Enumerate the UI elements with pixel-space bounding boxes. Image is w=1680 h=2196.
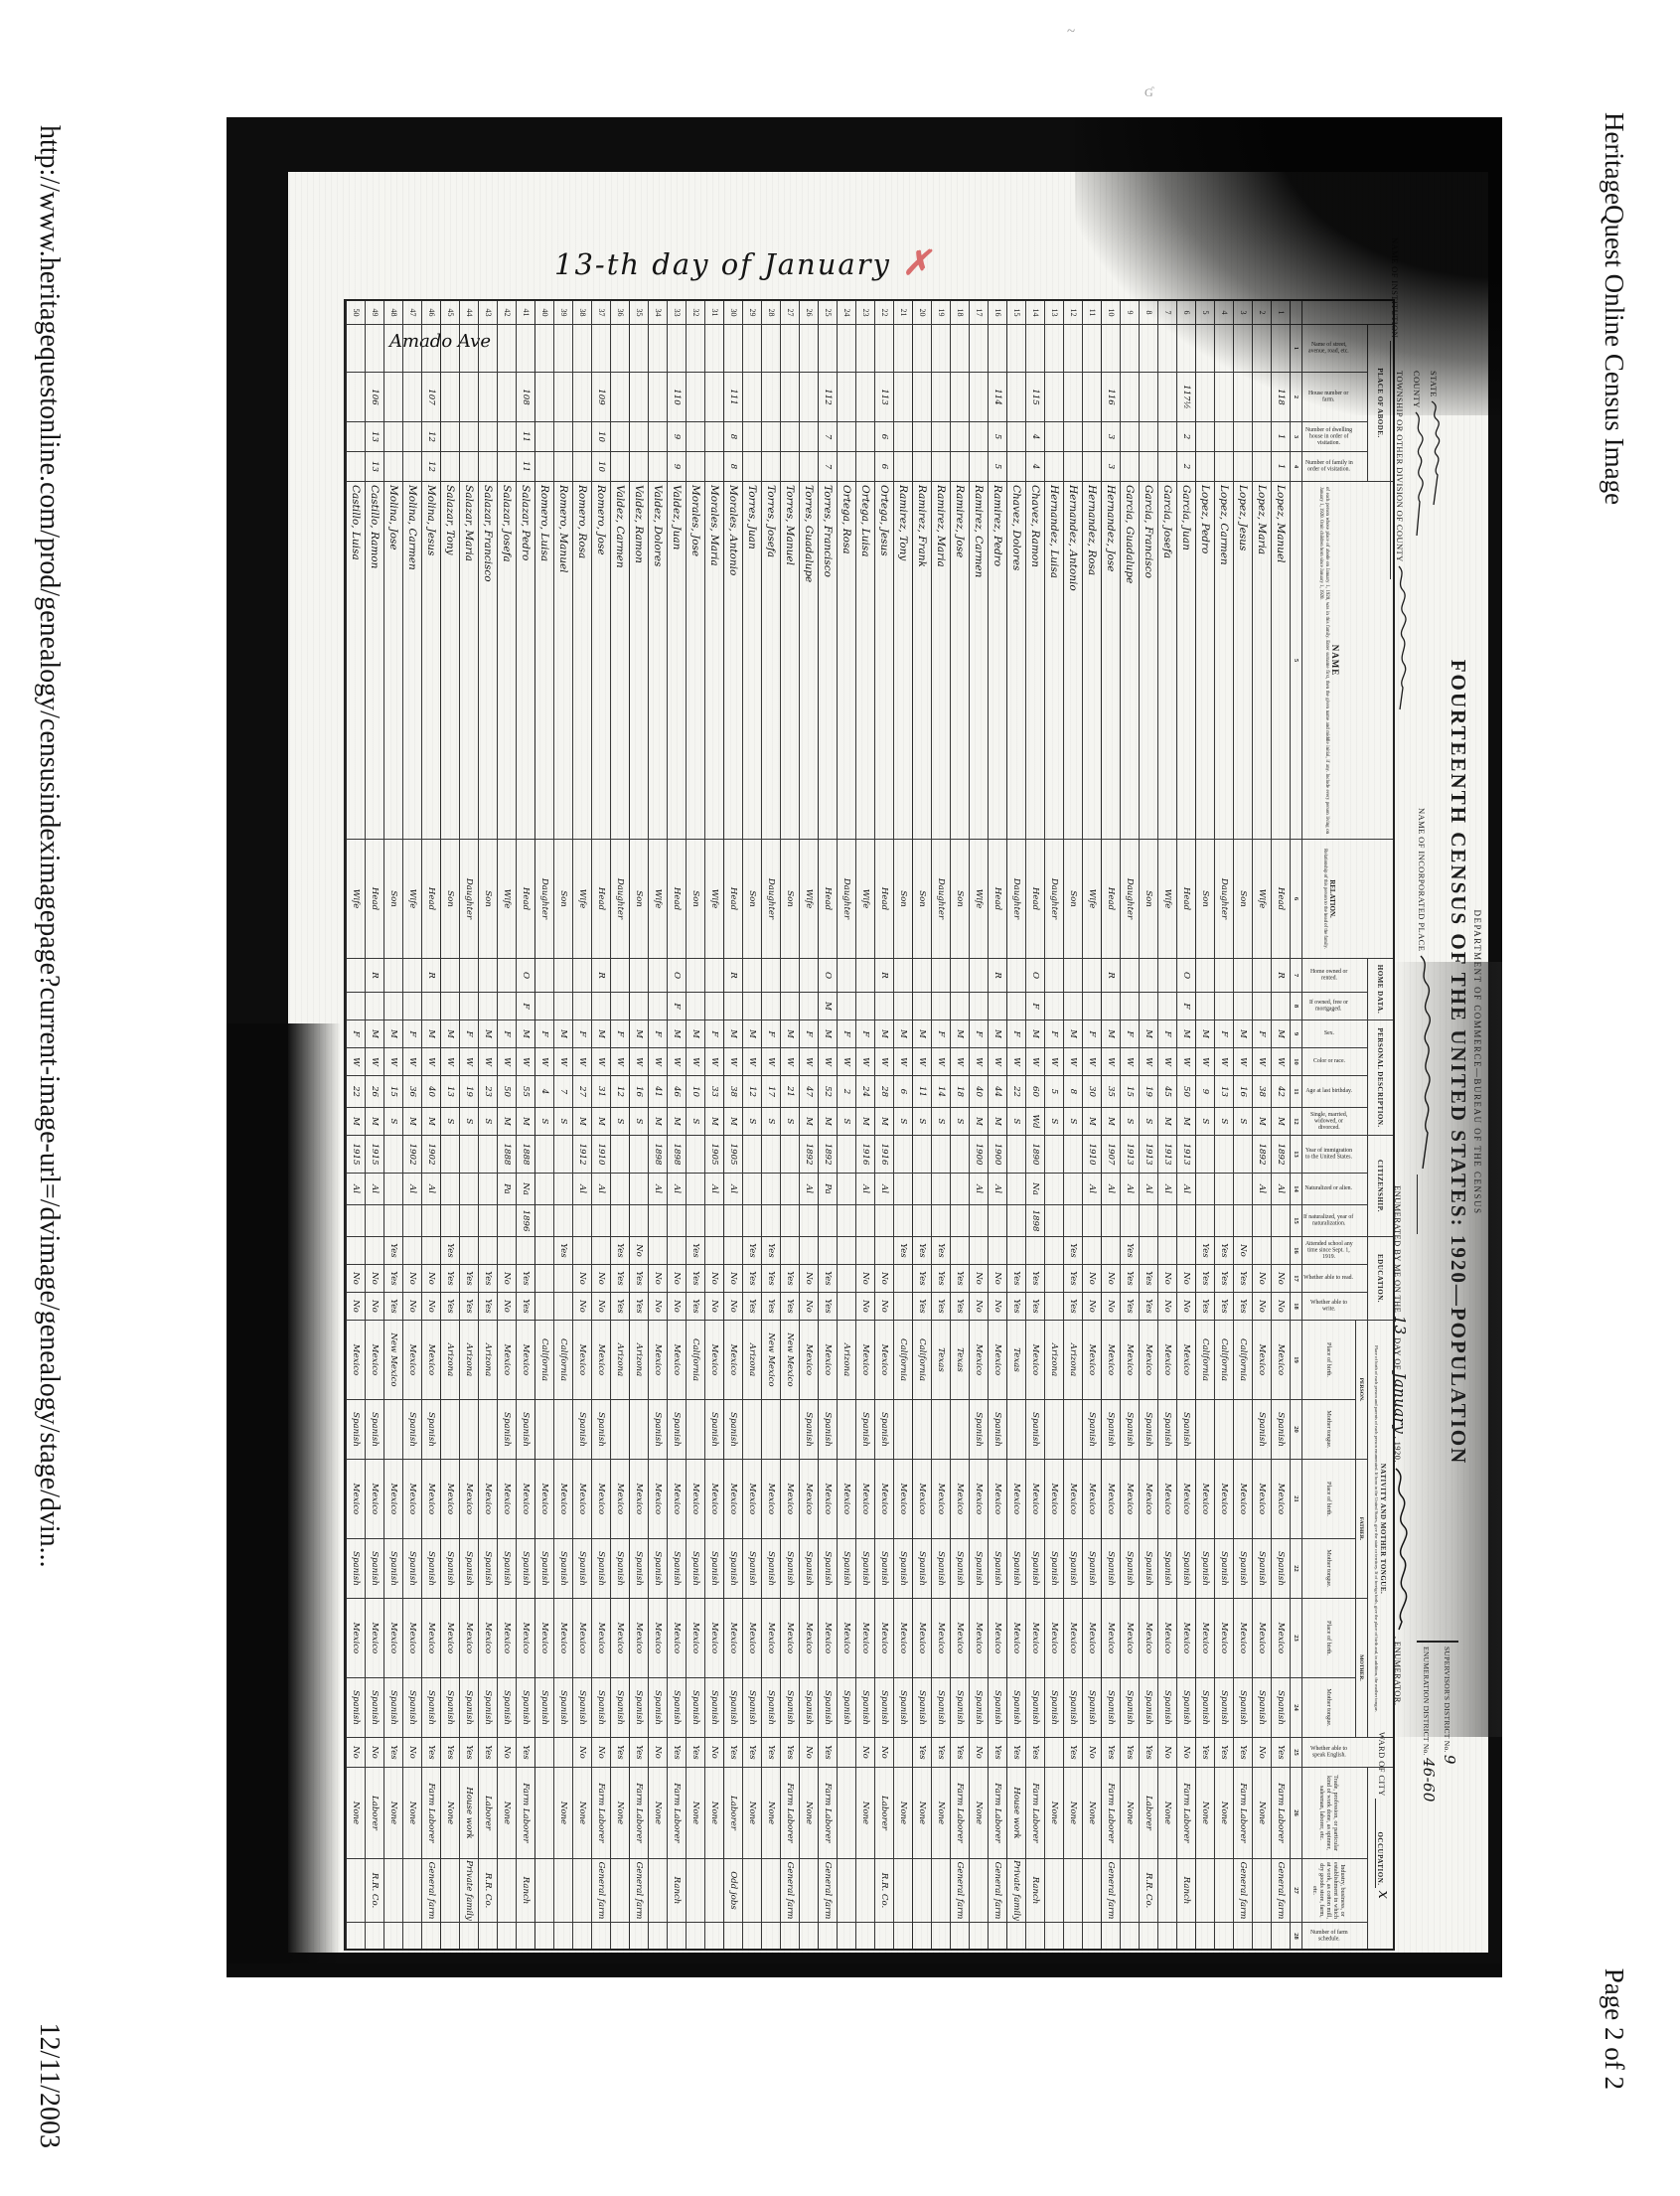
cell-sch: [704, 1237, 723, 1265]
cell-ind: General farm: [1271, 1859, 1290, 1923]
cell-fam: 5: [988, 452, 1006, 482]
cell-fbp: Mexico: [1101, 1460, 1120, 1539]
cell-mmt: Spanish: [1271, 1678, 1290, 1738]
column-header-ms: Single, married, widowed, or divorced.: [1301, 1108, 1355, 1136]
cell-fbp: Mexico: [365, 1460, 383, 1539]
cell-natyr: [1214, 1205, 1233, 1237]
cell-ms: S: [629, 1108, 648, 1136]
cell-rel: Wife: [346, 840, 365, 959]
cell-house: [459, 373, 478, 422]
cell-age: 23: [478, 1076, 497, 1108]
cell-farm: [1006, 1923, 1025, 1951]
cell-street: [837, 325, 855, 373]
cell-name: Ortega, Jesus: [874, 482, 893, 840]
cell-fmt: Spanish: [1271, 1539, 1290, 1599]
cell-ms: M: [667, 1108, 686, 1136]
cell-fmt: Spanish: [686, 1539, 704, 1599]
cell-own: [1195, 959, 1214, 993]
cell-occ: None: [686, 1768, 704, 1859]
cell-street: [988, 325, 1006, 373]
cell-own: [742, 959, 761, 993]
cell-age: 33: [704, 1076, 723, 1108]
cell-mmt: Spanish: [1252, 1678, 1271, 1738]
cell-write: No: [969, 1293, 988, 1321]
column-number: 23: [1290, 1599, 1301, 1678]
cell-race: W: [1139, 1048, 1157, 1076]
cell-name: Salazar, Josefa: [497, 482, 516, 840]
cell-sex: F: [1214, 1020, 1233, 1048]
cell-age: 36: [402, 1076, 421, 1108]
cell-age: 13: [440, 1076, 459, 1108]
cell-fam: [1252, 452, 1271, 482]
cell-race: W: [1195, 1048, 1214, 1076]
cell-fmt: Spanish: [931, 1539, 950, 1599]
cell-bp: Mexico: [1120, 1321, 1139, 1400]
cell-nat: Al: [648, 1174, 667, 1205]
cell-sex: F: [761, 1020, 780, 1048]
cell-ms: S: [459, 1108, 478, 1136]
column-header-age: Age at last birthday.: [1301, 1076, 1355, 1108]
cell-occ: None: [1195, 1768, 1214, 1859]
cell-ms: M: [648, 1108, 667, 1136]
cell-age: 9: [1195, 1076, 1214, 1108]
cell-farm: [1025, 1923, 1044, 1951]
cell-mt: [1063, 1400, 1082, 1460]
cell-bp: Mexico: [855, 1321, 874, 1400]
cell-fmt: Spanish: [572, 1539, 591, 1599]
group-header-empty: [1355, 840, 1367, 959]
cell-mort: F: [516, 993, 535, 1020]
cell-sex: F: [648, 1020, 667, 1048]
cell-read: No: [704, 1265, 723, 1293]
cell-farm: [742, 1923, 761, 1951]
cell-fam: [1120, 452, 1139, 482]
cell-mbp: Mexico: [1120, 1599, 1139, 1678]
cell-dw: [969, 422, 988, 452]
cell-nat: [478, 1174, 497, 1205]
cell-name: Hernandez, Antonio: [1063, 482, 1082, 840]
red-x-mark: ✗: [902, 243, 933, 283]
census-row: 12Hernandez, AntonioSonMW8SYesYesYesAriz…: [1063, 301, 1082, 1949]
cell-imm: [950, 1136, 969, 1174]
cell-street: [855, 325, 874, 373]
cell-sch: [1006, 1237, 1025, 1265]
cell-race: W: [931, 1048, 950, 1076]
cell-sex: F: [572, 1020, 591, 1048]
cell-rel: Head: [421, 840, 440, 959]
cell-fmt: Spanish: [742, 1539, 761, 1599]
cell-mbp: Mexico: [553, 1599, 572, 1678]
cell-mort: [988, 993, 1006, 1020]
cell-mort: [837, 993, 855, 1020]
cell-dw: [1082, 422, 1101, 452]
cell-age: 24: [855, 1076, 874, 1108]
cell-eng: Yes: [1195, 1738, 1214, 1768]
cell-natyr: [893, 1205, 912, 1237]
cell-mt: Spanish: [1252, 1400, 1271, 1460]
cell-occ: Farm Laborer: [421, 1768, 440, 1859]
cell-ind: [572, 1859, 591, 1923]
cell-write: Yes: [742, 1293, 761, 1321]
cell-house: 107: [421, 373, 440, 422]
cell-imm: 1900: [988, 1136, 1006, 1174]
cell-farm: [818, 1923, 837, 1951]
cell-natyr: [402, 1205, 421, 1237]
cell-mbp: Mexico: [365, 1599, 383, 1678]
cell-ln: 24: [837, 301, 855, 325]
cell-nat: [761, 1174, 780, 1205]
cell-race: W: [610, 1048, 629, 1076]
cell-mort: [723, 993, 742, 1020]
cell-mt: Spanish: [988, 1400, 1006, 1460]
cell-race: W: [874, 1048, 893, 1076]
cell-mbp: Mexico: [610, 1599, 629, 1678]
cell-ms: M: [591, 1108, 610, 1136]
cell-age: 35: [1101, 1076, 1120, 1108]
cell-nat: [535, 1174, 553, 1205]
cell-mort: [1195, 993, 1214, 1020]
cell-nat: Al: [1139, 1174, 1157, 1205]
cell-write: No: [365, 1293, 383, 1321]
cell-mt: Spanish: [365, 1400, 383, 1460]
cell-house: 111: [723, 373, 742, 422]
cell-mt: Spanish: [497, 1400, 516, 1460]
census-row: 47Molina, CarmenWifeFW36M1902AlNoNoMexic…: [402, 301, 421, 1949]
cell-fam: [402, 452, 421, 482]
cell-mmt: Spanish: [818, 1678, 837, 1738]
cell-house: 110: [667, 373, 686, 422]
cell-street: [591, 325, 610, 373]
cell-mbp: Mexico: [572, 1599, 591, 1678]
cell-fam: [497, 452, 516, 482]
group-header-empty: [1355, 1265, 1367, 1293]
column-header-natyr: If naturalized, year of naturalization.: [1301, 1205, 1355, 1237]
cell-imm: 1902: [402, 1136, 421, 1174]
cell-natyr: [535, 1205, 553, 1237]
cell-bp: Arizona: [1063, 1321, 1082, 1400]
cell-write: Yes: [629, 1293, 648, 1321]
column-header-eng: Whether able to speak English.: [1301, 1738, 1355, 1768]
cell-ms: S: [893, 1108, 912, 1136]
cell-rel: Son: [440, 840, 459, 959]
cell-imm: [837, 1136, 855, 1174]
cell-mt: Spanish: [1176, 1400, 1195, 1460]
cell-rel: Head: [988, 840, 1006, 959]
cell-rel: Wife: [497, 840, 516, 959]
cell-nat: Al: [874, 1174, 893, 1205]
column-number: 9: [1290, 1020, 1301, 1048]
cell-fbp: Mexico: [1044, 1460, 1063, 1539]
cell-farm: [1271, 1923, 1290, 1951]
cell-mbp: Mexico: [478, 1599, 497, 1678]
census-row: 8Garcia, FranciscoSonMW19S1913AlYesYesMe…: [1139, 301, 1157, 1949]
cell-fbp: Mexico: [874, 1460, 893, 1539]
cell-natyr: 1896: [516, 1205, 535, 1237]
cell-name: Salazar, Francisco: [478, 482, 497, 840]
cell-rel: Daughter: [1006, 840, 1025, 959]
cell-read: No: [723, 1265, 742, 1293]
cell-mort: [478, 993, 497, 1020]
census-row: 40Romero, LuisaDaughterFW4SCaliforniaMex…: [535, 301, 553, 1949]
cell-mbp: Mexico: [704, 1599, 723, 1678]
cell-eng: No: [799, 1738, 818, 1768]
cell-street: [553, 325, 572, 373]
cell-dw: [1044, 422, 1063, 452]
cell-age: 28: [874, 1076, 893, 1108]
cell-farm: [969, 1923, 988, 1951]
cell-read: Yes: [1195, 1265, 1214, 1293]
cell-occ: Laborer: [723, 1768, 742, 1859]
cell-street: [874, 325, 893, 373]
cell-nat: Pa: [497, 1174, 516, 1205]
group-header-empty: [1355, 993, 1367, 1020]
cell-write: Yes: [610, 1293, 629, 1321]
cell-imm: [459, 1136, 478, 1174]
cell-imm: 1888: [497, 1136, 516, 1174]
census-row: 42Salazar, JosefaWifeFW50M1888PaNoNoMexi…: [497, 301, 516, 1949]
cell-own: R: [723, 959, 742, 993]
cell-mmt: Spanish: [742, 1678, 761, 1738]
cell-read: No: [1101, 1265, 1120, 1293]
cell-fam: [704, 452, 723, 482]
cell-ln: 26: [799, 301, 818, 325]
cell-ind: Odd jobs: [723, 1859, 742, 1923]
cell-mort: [383, 993, 402, 1020]
cell-natyr: [912, 1205, 931, 1237]
cell-race: W: [742, 1048, 761, 1076]
cell-sch: [1044, 1237, 1063, 1265]
cell-nat: [1006, 1174, 1025, 1205]
cell-age: 40: [421, 1076, 440, 1108]
cell-age: 42: [1271, 1076, 1290, 1108]
cell-sch: Yes: [1214, 1237, 1233, 1265]
cell-mt: [686, 1400, 704, 1460]
group-header-empty: [1355, 959, 1367, 993]
cell-mbp: Mexico: [421, 1599, 440, 1678]
cell-sch: [572, 1237, 591, 1265]
cell-street: [950, 325, 969, 373]
cell-house: [780, 373, 799, 422]
group-header: HOME DATA.: [1367, 959, 1393, 1020]
cell-bp: California: [1195, 1321, 1214, 1400]
cell-fmt: Spanish: [648, 1539, 667, 1599]
cell-sch: [478, 1237, 497, 1265]
census-row: 5Lopez, PedroSonMW9SYesYesYesCaliforniaM…: [1195, 301, 1214, 1949]
cell-farm: [591, 1923, 610, 1951]
cell-ln: 18: [950, 301, 969, 325]
cell-name: Torres, Manuel: [780, 482, 799, 840]
cell-write: Yes: [950, 1293, 969, 1321]
cell-ms: S: [1120, 1108, 1139, 1136]
scan-grain-edge: [1393, 962, 1502, 1737]
cell-ln: 19: [931, 301, 950, 325]
cell-natyr: [818, 1205, 837, 1237]
cell-race: W: [1025, 1048, 1044, 1076]
census-row: 36Valdez, CarmenDaughterFW12SYesYesYesAr…: [610, 301, 629, 1949]
cell-dw: [837, 422, 855, 452]
cell-sex: M: [478, 1020, 497, 1048]
cell-sex: M: [818, 1020, 837, 1048]
cell-ms: S: [780, 1108, 799, 1136]
cell-eng: Yes: [1101, 1738, 1120, 1768]
census-form: DEPARTMENT OF COMMERCE—BUREAU OF THE CEN…: [288, 172, 1488, 1953]
cell-mbp: Mexico: [497, 1599, 516, 1678]
print-header: HeritageQuest Online Census Image Page 2…: [1592, 112, 1637, 2090]
cell-imm: 1910: [1082, 1136, 1101, 1174]
cell-imm: [780, 1136, 799, 1174]
cell-ind: Private family: [459, 1859, 478, 1923]
cell-race: W: [516, 1048, 535, 1076]
group-header: CITIZENSHIP.: [1367, 1136, 1393, 1237]
cell-rel: Head: [1025, 840, 1044, 959]
cell-fam: [912, 452, 931, 482]
cell-write: Yes: [1063, 1293, 1082, 1321]
cell-mmt: Spanish: [497, 1678, 516, 1738]
cell-fmt: Spanish: [1025, 1539, 1044, 1599]
cell-eng: Yes: [931, 1738, 950, 1768]
cell-bp: New Mexico: [780, 1321, 799, 1400]
cell-bp: Texas: [931, 1321, 950, 1400]
cell-sch: Yes: [742, 1237, 761, 1265]
column-header-bp: Place of birth.: [1301, 1321, 1355, 1400]
cell-eng: No: [874, 1738, 893, 1768]
cell-sex: M: [440, 1020, 459, 1048]
cell-read: No: [365, 1265, 383, 1293]
cell-mbp: Mexico: [535, 1599, 553, 1678]
cell-ind: [1252, 1859, 1271, 1923]
cell-fmt: Spanish: [950, 1539, 969, 1599]
cell-ms: S: [440, 1108, 459, 1136]
cell-fmt: Spanish: [761, 1539, 780, 1599]
cell-race: W: [572, 1048, 591, 1076]
cell-rel: Son: [912, 840, 931, 959]
cell-race: W: [855, 1048, 874, 1076]
handwritten-scribble: [1395, 564, 1405, 713]
cell-fam: [1233, 452, 1252, 482]
cell-race: W: [667, 1048, 686, 1076]
column-number: 7: [1290, 959, 1301, 993]
cell-race: W: [818, 1048, 837, 1076]
cell-bp: Mexico: [1271, 1321, 1290, 1400]
cell-ind: [610, 1859, 629, 1923]
cell-dw: [1214, 422, 1233, 452]
cell-mt: [950, 1400, 969, 1460]
cell-bp: California: [1214, 1321, 1233, 1400]
cell-fbp: Mexico: [855, 1460, 874, 1539]
cell-name: Ramirez, Tony: [893, 482, 912, 840]
cell-ind: [969, 1859, 988, 1923]
cell-mort: [1063, 993, 1082, 1020]
cell-age: 11: [912, 1076, 931, 1108]
cell-farm: [1157, 1923, 1176, 1951]
cell-natyr: [969, 1205, 988, 1237]
cell-mmt: Spanish: [667, 1678, 686, 1738]
cell-eng: Yes: [1025, 1738, 1044, 1768]
column-number: 21: [1290, 1460, 1301, 1539]
cell-mbp: Mexico: [383, 1599, 402, 1678]
column-number: 20: [1290, 1400, 1301, 1460]
cell-natyr: [988, 1205, 1006, 1237]
cell-bp: Mexico: [818, 1321, 837, 1400]
cell-sex: M: [667, 1020, 686, 1048]
cell-mbp: Mexico: [912, 1599, 931, 1678]
cell-mort: [742, 993, 761, 1020]
cell-occ: Farm Laborer: [1101, 1768, 1120, 1859]
cell-mt: Spanish: [799, 1400, 818, 1460]
cell-mort: [855, 993, 874, 1020]
cell-write: No: [591, 1293, 610, 1321]
cell-read: Yes: [686, 1265, 704, 1293]
cell-mbp: Mexico: [516, 1599, 535, 1678]
column-header-race: Color or race.: [1301, 1048, 1355, 1076]
column-number: 27: [1290, 1859, 1301, 1923]
cell-sex: M: [1063, 1020, 1082, 1048]
cell-dw: [383, 422, 402, 452]
cell-imm: [629, 1136, 648, 1174]
cell-nat: Al: [365, 1174, 383, 1205]
cell-mmt: Spanish: [553, 1678, 572, 1738]
cell-age: 52: [818, 1076, 837, 1108]
cell-eng: [837, 1738, 855, 1768]
cell-dw: 10: [591, 422, 610, 452]
cell-mmt: Spanish: [1063, 1678, 1082, 1738]
cell-house: [931, 373, 950, 422]
scan-bottom-strip: [227, 1963, 1502, 1977]
cell-sex: F: [402, 1020, 421, 1048]
cell-rel: Wife: [704, 840, 723, 959]
print-artifact: Ɠ: [1145, 85, 1153, 100]
column-header-write: Whether able to write.: [1301, 1293, 1355, 1321]
cell-mbp: Mexico: [667, 1599, 686, 1678]
cell-mbp: Mexico: [988, 1599, 1006, 1678]
cell-occ: None: [1157, 1768, 1176, 1859]
cell-sch: [969, 1237, 988, 1265]
cell-name: Garcia, Guadalupe: [1120, 482, 1139, 840]
cell-rel: Son: [383, 840, 402, 959]
cell-age: 46: [667, 1076, 686, 1108]
cell-eng: No: [969, 1738, 988, 1768]
cell-occ: None: [1063, 1768, 1082, 1859]
cell-write: [1044, 1293, 1063, 1321]
cell-imm: 1913: [1120, 1136, 1139, 1174]
cell-mbp: Mexico: [459, 1599, 478, 1678]
cell-eng: No: [1176, 1738, 1195, 1768]
cell-ms: S: [553, 1108, 572, 1136]
cell-nat: [1044, 1174, 1063, 1205]
cell-dw: [780, 422, 799, 452]
cell-mbp: Mexico: [1063, 1599, 1082, 1678]
cell-farm: [497, 1923, 516, 1951]
cell-occ: None: [572, 1768, 591, 1859]
census-row: 2511277Torres, FranciscoHeadOMMW52M1892P…: [818, 301, 837, 1949]
cell-ms: S: [950, 1108, 969, 1136]
cell-rel: Son: [780, 840, 799, 959]
cell-mort: M: [818, 993, 837, 1020]
cell-bp: Texas: [1006, 1321, 1025, 1400]
cell-mort: [591, 993, 610, 1020]
cell-fbp: Mexico: [402, 1460, 421, 1539]
cell-street: [535, 325, 553, 373]
column-number: 19: [1290, 1321, 1301, 1400]
cell-dw: [497, 422, 516, 452]
cell-age: 15: [1120, 1076, 1139, 1108]
cell-mort: [497, 993, 516, 1020]
cell-ms: M: [402, 1108, 421, 1136]
cell-mt: Spanish: [1139, 1400, 1157, 1460]
cell-nat: Al: [723, 1174, 742, 1205]
cell-name: Chavez, Dolores: [1006, 482, 1025, 840]
column-header-nat: Naturalized or alien.: [1301, 1174, 1355, 1205]
